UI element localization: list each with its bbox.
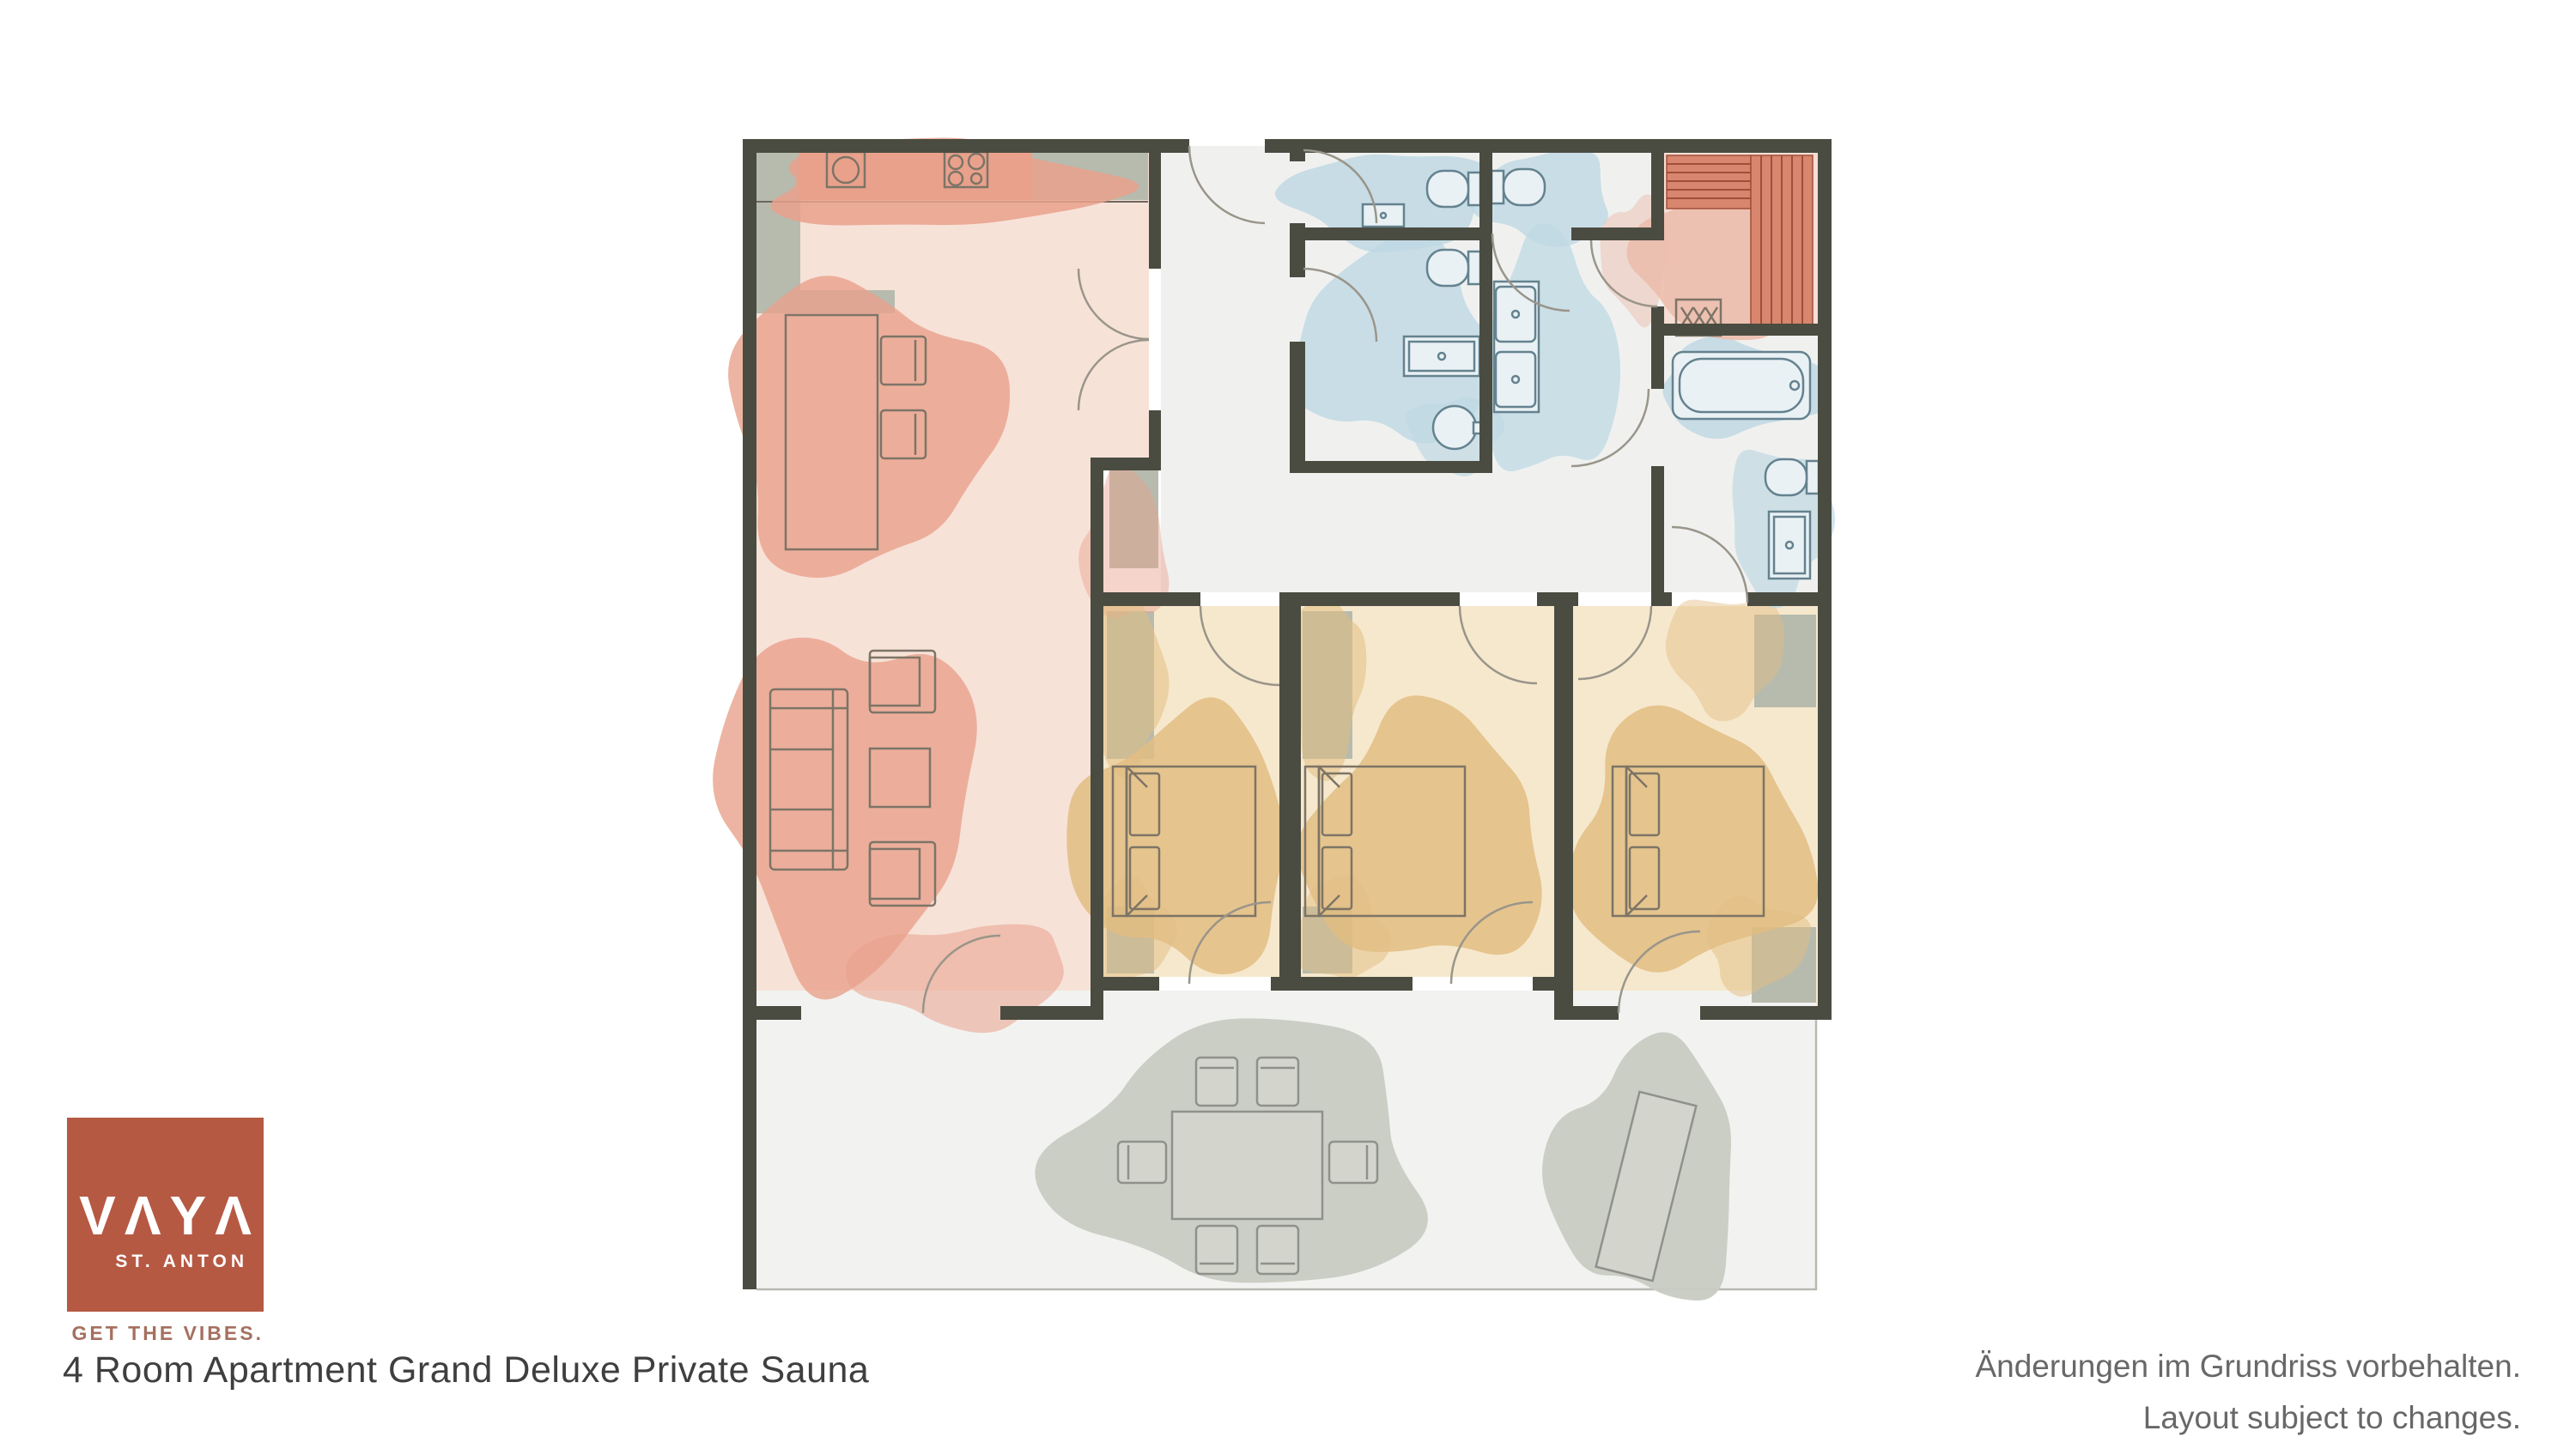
sauna-bench-right [1751, 155, 1813, 332]
vaya-logo: VΛYΛ ST. ANTON [67, 1118, 264, 1312]
outdoor-chair [1196, 1058, 1237, 1106]
outdoor-table [1172, 1112, 1322, 1219]
logo-tagline: GET THE VIBES. [67, 1322, 264, 1345]
outdoor-chair [1257, 1226, 1298, 1274]
outdoor-chair [1118, 1142, 1166, 1183]
hand-basin-icon [1363, 204, 1404, 227]
logo-wordmark: VΛYΛ [70, 1188, 260, 1243]
outdoor-chair [1257, 1058, 1298, 1106]
sauna-bench-top [1667, 155, 1751, 209]
bathroom-vanity-icon [1769, 512, 1810, 579]
page: VΛYΛ ST. ANTON GET THE VIBES. 4 Room Apa… [0, 0, 2576, 1449]
disclaimer-line-en: Layout subject to changes. [1975, 1392, 2521, 1444]
floor-plan [0, 0, 2576, 1449]
toilet-icon [1427, 171, 1480, 207]
toilet-icon [1427, 250, 1480, 286]
disclaimer: Änderungen im Grundriss vorbehalten. Lay… [1975, 1341, 2521, 1444]
logo-location: ST. ANTON [115, 1252, 248, 1272]
outdoor-chair [1196, 1226, 1237, 1274]
toilet-icon [1492, 169, 1545, 205]
vanity-sink-icon [1404, 336, 1479, 376]
outdoor-chair [1329, 1142, 1377, 1183]
disclaimer-line-de: Änderungen im Grundriss vorbehalten. [1975, 1341, 2521, 1392]
toilet-icon [1765, 459, 1819, 495]
bathtub-icon [1673, 352, 1810, 419]
page-title: 4 Room Apartment Grand Deluxe Private Sa… [63, 1349, 869, 1391]
